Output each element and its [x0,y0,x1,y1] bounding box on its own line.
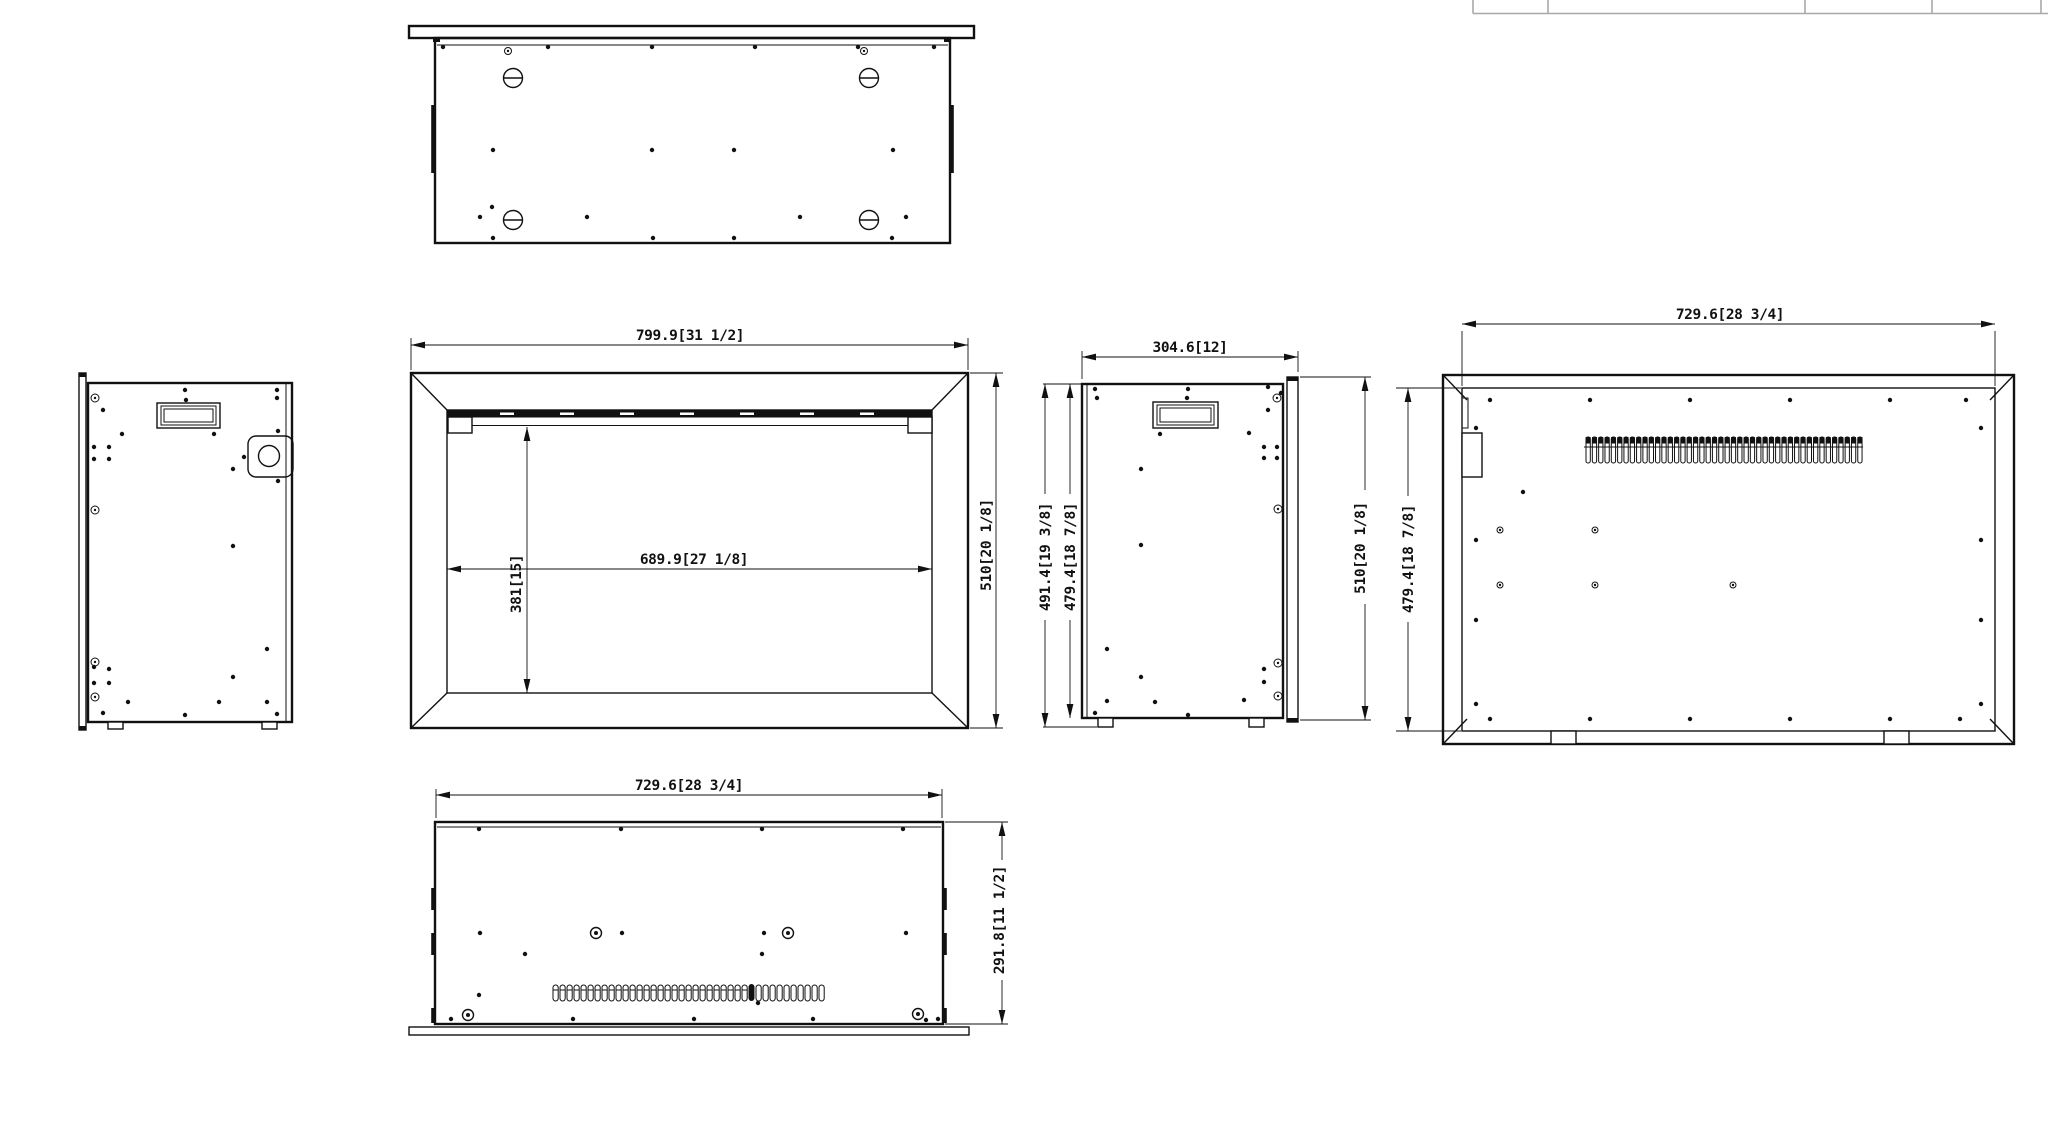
screw-hole-dot [491,236,495,240]
drawing-line [1160,408,1211,422]
screw-hole-dot [798,215,802,219]
screw-hole-dot [1262,456,1266,460]
grille-slot-cap [1617,437,1622,444]
vent-slot [588,985,593,1001]
grille-slot-cap [1731,437,1736,444]
screw-hole-dot [1262,445,1266,449]
grille-slot-cap [1706,437,1711,444]
ring-screw-center [1499,584,1501,586]
drawing-line [431,933,435,955]
grille-slot-cap [1769,437,1774,444]
vent-slot [728,985,733,1001]
screw-hole-dot [1979,538,1983,542]
vent-strip-slot [620,413,634,416]
top-right-tab [950,105,954,173]
screw-hole-dot [242,455,246,459]
vent-slot [812,985,817,1001]
screw-hole-dot [732,236,736,240]
vent-slot [567,985,572,1001]
dim-bottom-body-width: 729.6[28 3/4] [635,778,743,794]
screw-hole-dot [932,45,936,49]
right-foot [1098,718,1113,727]
grille-slot-cap [1826,437,1831,444]
left-ring-screws [91,394,99,701]
front-right-bracket [908,417,932,433]
vent-slot [777,985,782,1001]
left-cord-hole [259,446,280,467]
screw-hole-dot [1688,398,1692,402]
back-foot [1884,731,1909,744]
drawing-line [1462,398,1468,428]
left-front-flange [79,373,86,730]
screw-hole-dot [231,467,235,471]
vent-strip-slot [560,413,574,416]
screw-hole-dot [92,445,96,449]
dim-side-body-height: 479.4[18 7/8] [1063,503,1079,611]
grille-slot-cap [1794,437,1799,444]
screw-hole-dot [811,1017,815,1021]
back-vent-grille [1586,437,1863,463]
drawing-line [164,409,213,422]
grille-slot-cap [1813,437,1818,444]
grille-slot-cap [1674,437,1679,444]
grille-slot-cap [1820,437,1825,444]
right-screw-holes [1093,385,1283,717]
screw-hole-dot [183,713,187,717]
ring-screw-center [507,50,509,52]
top-small-rings [505,48,868,55]
screw-hole-dot [619,827,623,831]
screw-hole-dot [1186,387,1190,391]
right-front-flange [1287,377,1298,722]
screw-hole-dot [1958,717,1962,721]
screw-hole-dot [1788,717,1792,721]
screw-hole-dot [276,479,280,483]
screw-hole-dot [231,675,235,679]
grille-slot-cap [1775,437,1780,444]
ring-screw-center [1594,584,1596,586]
dim-front-opening-height: 381[15] [509,555,525,613]
grille-slot-cap [1788,437,1793,444]
vent-slot [560,985,565,1001]
screw-hole-dot [1153,700,1157,704]
vent-slot [798,985,803,1001]
screw-hole-dot [1979,618,1983,622]
bottom-vent-slots [553,984,824,1001]
grille-slot-cap [1801,437,1806,444]
drawing-line [1287,377,1298,381]
front-view: 799.9[31 1/2] 689.9[27 1/8] 381[15] 510[… [411,328,1003,728]
left-foot [262,722,277,729]
back-screw-holes [1474,398,1983,721]
screw-hole-dot [1262,680,1266,684]
vent-slot [784,985,789,1001]
vent-slot [637,985,642,1001]
dim-side-depth: 304.6[12] [1153,340,1228,356]
screw-hole-dot [107,445,111,449]
dim-back-panel-height: 479.4[18 7/8] [1401,505,1417,613]
screw-hole-dot [275,712,279,716]
grille-slot-cap [1725,437,1730,444]
dim-front-opening-width: 689.9[27 1/8] [640,552,748,568]
bottom-front-flange [409,1027,969,1035]
screw-hole-dot [231,544,235,548]
ring-screw-center [1594,529,1596,531]
screw-hole-dot [692,1017,696,1021]
grommet-center [466,1013,470,1017]
grille-slot-cap [1718,437,1723,444]
right-body-outline [1082,384,1283,718]
screw-hole-dot [1979,426,1983,430]
screw-hole-dot [107,457,111,461]
screw-hole-dot [477,827,481,831]
grille-slot-cap [1643,437,1648,444]
screw-hole-dot [585,215,589,219]
vent-slot [623,985,628,1001]
drawing-line [944,38,951,42]
dim-bottom-body-depth: 291.8[11 1/2] [992,866,1008,974]
screw-hole-dot [1158,432,1162,436]
bottom-body-outline [435,822,943,1024]
ring-screw-center [1277,508,1279,510]
ring-screw-center [94,661,96,663]
screw-hole-dot [1979,702,1983,706]
screw-hole-dot [760,952,764,956]
screw-hole-dot [265,647,269,651]
screw-hole-dot [901,827,905,831]
vent-slot [721,985,726,1001]
screw-hole-dot [107,667,111,671]
screw-hole-dot [856,45,860,49]
screw-hole-dot [1275,445,1279,449]
screw-hole-dot [217,700,221,704]
screw-hole-dot [904,931,908,935]
screw-hole-dot [936,1017,940,1021]
screw-hole-dot [1588,398,1592,402]
dim-side-flange-height: 510[20 1/8] [1353,502,1369,594]
screw-hole-dot [1247,431,1251,435]
left-side-view [79,373,293,730]
grille-slot-cap [1763,437,1768,444]
screw-hole-dot [265,700,269,704]
screw-hole-dot [1488,398,1492,402]
screw-hole-dot [1275,456,1279,460]
screw-hole-dot [650,148,654,152]
screw-hole-dot [477,993,481,997]
grille-slot-cap [1807,437,1812,444]
drawing-line [943,1008,947,1023]
vent-slot [644,985,649,1001]
vent-strip-slot [680,413,694,416]
dim-front-outer-width: 799.9[31 1/2] [636,328,744,344]
grille-slot-cap [1699,437,1704,444]
right-side-view: 304.6[12] 491.4[19 3/8] 479.4[18 7/8] 51… [1037,340,1371,727]
screw-hole-dot [1474,702,1478,706]
vent-slot [693,985,698,1001]
screw-hole-dot [1262,667,1266,671]
back-view: 729.6[28 3/4] 479.4[18 7/8] [1396,307,2014,744]
grille-slot-cap [1605,437,1610,444]
drawing-line [943,933,947,955]
screw-hole-dot [732,148,736,152]
drawing-line [932,373,968,410]
screw-hole-dot [1488,717,1492,721]
grille-slot-cap [1737,437,1742,444]
screw-hole-dot [1474,618,1478,622]
title-block-edge [1473,0,2048,14]
grille-slot-cap [1655,437,1660,444]
vent-slot [770,985,775,1001]
screw-hole-dot [92,665,96,669]
screw-hole-dot [753,45,757,49]
screw-hole-dot [1139,675,1143,679]
right-handle-cutout [1153,402,1218,428]
screw-hole-dot [101,408,105,412]
left-foot [108,722,123,729]
back-outer-frame [1443,375,2014,744]
grille-slot-cap [1744,437,1749,444]
dim-back-panel-width: 729.6[28 3/4] [1676,307,1784,323]
screw-hole-dot [1186,713,1190,717]
dim-side-height-overall: 491.4[19 3/8] [1038,503,1054,611]
vent-slot-solid [749,984,755,1001]
screw-hole-dot [275,388,279,392]
drawing-line [943,888,947,910]
grille-slot-cap [1851,437,1856,444]
screw-hole-dot [449,1017,453,1021]
bottom-view: 729.6[28 3/4] 291.8[11 1/2] [409,778,1008,1035]
screw-hole-dot [1888,717,1892,721]
vent-slot [651,985,656,1001]
top-front-flange [409,26,974,38]
screw-hole-dot [212,432,216,436]
screw-hole-dot [1688,717,1692,721]
screw-hole-dot [120,432,124,436]
screw-hole-dot [762,931,766,935]
screw-hole-dot [1095,396,1099,400]
screw-hole-dot [1474,426,1478,430]
front-outer-frame [411,373,968,728]
front-left-bracket [448,417,472,433]
ring-screw-center [1277,662,1279,664]
ring-screw-center [1276,397,1278,399]
vent-slot [602,985,607,1001]
vent-slot [553,985,558,1001]
vent-slot [686,985,691,1001]
screw-hole-dot [1474,538,1478,542]
vent-strip-slot [800,413,814,416]
ring-screw-center [94,696,96,698]
vent-slot [819,985,824,1001]
grille-slot-cap [1693,437,1698,444]
screw-hole-dot [478,215,482,219]
grommet-center [594,931,598,935]
drawing-line [431,888,435,910]
top-view [409,26,974,243]
right-foot [1249,718,1264,727]
grommet-center [916,1012,920,1016]
screw-hole-dot [107,681,111,685]
screw-hole-dot [1139,543,1143,547]
grille-slot-cap [1624,437,1629,444]
screw-hole-dot [1788,398,1792,402]
ring-screw-center [94,397,96,399]
grille-slot-cap [1611,437,1616,444]
screw-hole-dot [126,700,130,704]
screw-hole-dot [760,827,764,831]
back-foot [1551,731,1576,744]
screw-hole-dot [1521,490,1525,494]
grommet-center [786,931,790,935]
ring-screw-center [1499,529,1501,531]
screw-hole-dot [92,457,96,461]
vent-slot [742,985,747,1001]
screw-hole-dot [491,148,495,152]
screw-hole-dot [1266,385,1270,389]
screw-hole-dot [276,429,280,433]
grille-slot-cap [1586,437,1591,444]
screw-hole-dot [1185,396,1189,400]
screw-hole-dot [1964,398,1968,402]
vent-strip-slot [740,413,754,416]
top-slotted-screws [504,69,879,230]
vent-slot [609,985,614,1001]
grille-slot-cap [1592,437,1597,444]
grille-slot-cap [1857,437,1862,444]
ring-screw-center [1732,584,1734,586]
grille-slot-cap [1636,437,1641,444]
screw-hole-dot [523,952,527,956]
grille-slot-cap [1845,437,1850,444]
screw-hole-dot [1888,398,1892,402]
screw-hole-dot [1139,467,1143,471]
grille-slot-cap [1687,437,1692,444]
back-junction-box [1462,433,1482,477]
dim-front-outer-height: 510[20 1/8] [979,499,995,591]
grille-slot-cap [1839,437,1844,444]
drawing-line [1287,718,1298,722]
grille-slot-cap [1681,437,1686,444]
right-ring-screws [1273,394,1282,700]
grille-slot-cap [1712,437,1717,444]
vent-slot [616,985,621,1001]
grille-slot-cap [1832,437,1837,444]
grille-slot-cap [1750,437,1755,444]
vent-slot [756,985,761,1001]
screw-hole-dot [1242,698,1246,702]
ring-screw-center [94,509,96,511]
screw-hole-dot [1105,647,1109,651]
grille-slot-cap [1756,437,1761,444]
screw-hole-dot [490,205,494,209]
vent-slot [581,985,586,1001]
screw-hole-dot [650,45,654,49]
drawing-line [79,373,86,377]
vent-slot [700,985,705,1001]
vent-slot [658,985,663,1001]
drawing-sheet: 799.9[31 1/2] 689.9[27 1/8] 381[15] 510[… [0,0,2048,1136]
vent-slot [595,985,600,1001]
vent-slot [679,985,684,1001]
grille-slot-cap [1649,437,1654,444]
grille-slot-cap [1668,437,1673,444]
vent-slot [665,985,670,1001]
vent-slot [791,985,796,1001]
vent-slot [707,985,712,1001]
vent-slot [805,985,810,1001]
screw-hole-dot [756,1001,760,1005]
screw-hole-dot [184,398,188,402]
vent-slot [714,985,719,1001]
grille-slot-cap [1598,437,1603,444]
screw-hole-dot [620,931,624,935]
bottom-grommet-screws [463,928,924,1021]
screw-hole-dot [904,215,908,219]
vent-slot [672,985,677,1001]
screw-hole-dot [1105,699,1109,703]
screw-hole-dot [651,236,655,240]
grille-slot-cap [1630,437,1635,444]
vent-slot [630,985,635,1001]
left-handle-cutout [157,403,220,428]
drawing-line [411,693,447,728]
ring-screw-center [863,50,865,52]
screw-hole-dot [546,45,550,49]
screw-hole-dot [275,396,279,400]
drawing-line [431,1008,435,1023]
screw-hole-dot [183,388,187,392]
screw-hole-dot [890,236,894,240]
vent-slot [735,985,740,1001]
left-body-outline [88,383,292,722]
drawing-line [79,726,86,730]
drawing-line [932,693,968,728]
back-small-rings [1497,527,1736,588]
screw-hole-dot [1588,717,1592,721]
screw-hole-dot [1279,391,1283,395]
screw-hole-dot [1266,408,1270,412]
screw-hole-dot [1093,387,1097,391]
screw-hole-dot [478,931,482,935]
screw-hole-dot [1093,711,1097,715]
screw-hole-dot [92,681,96,685]
top-left-tab [431,105,435,173]
vent-strip-slot [500,413,514,416]
screw-hole-dot [101,711,105,715]
drawing-line [433,38,440,42]
drawing-line [411,373,447,410]
drawing-canvas: 799.9[31 1/2] 689.9[27 1/8] 381[15] 510[… [0,0,2048,1136]
vent-slot [574,985,579,1001]
ring-screw-center [1277,695,1279,697]
grille-slot-cap [1782,437,1787,444]
screw-hole-dot [571,1017,575,1021]
screw-hole-dot [441,45,445,49]
screw-hole-dot [924,1018,928,1022]
screw-hole-dot [891,148,895,152]
grille-slot-cap [1662,437,1667,444]
vent-strip-slot [860,413,874,416]
bottom-screw-holes [449,827,940,1022]
vent-slot [763,985,768,1001]
